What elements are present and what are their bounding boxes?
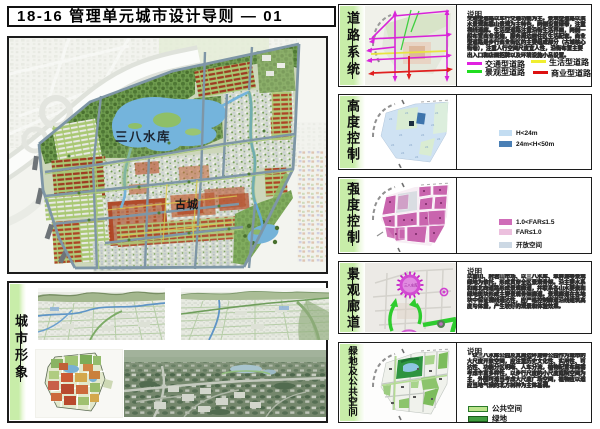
svg-text:24: 24: [435, 111, 439, 115]
svg-text:24: 24: [401, 151, 405, 155]
svg-text:24: 24: [421, 133, 425, 137]
svg-text:24: 24: [415, 155, 419, 159]
svg-text:24: 24: [399, 133, 403, 137]
svg-text:古城: 古城: [175, 197, 199, 211]
svg-text:24: 24: [409, 143, 413, 147]
svg-text:三八水库: 三八水库: [115, 129, 171, 144]
svg-text:24: 24: [425, 145, 429, 149]
svg-text:24: 24: [389, 117, 393, 121]
svg-text:24: 24: [437, 137, 441, 141]
svg-text:24: 24: [391, 143, 395, 147]
svg-text:24: 24: [405, 111, 409, 115]
svg-text:24: 24: [431, 123, 435, 127]
svg-text:三八水库: 三八水库: [404, 283, 418, 288]
